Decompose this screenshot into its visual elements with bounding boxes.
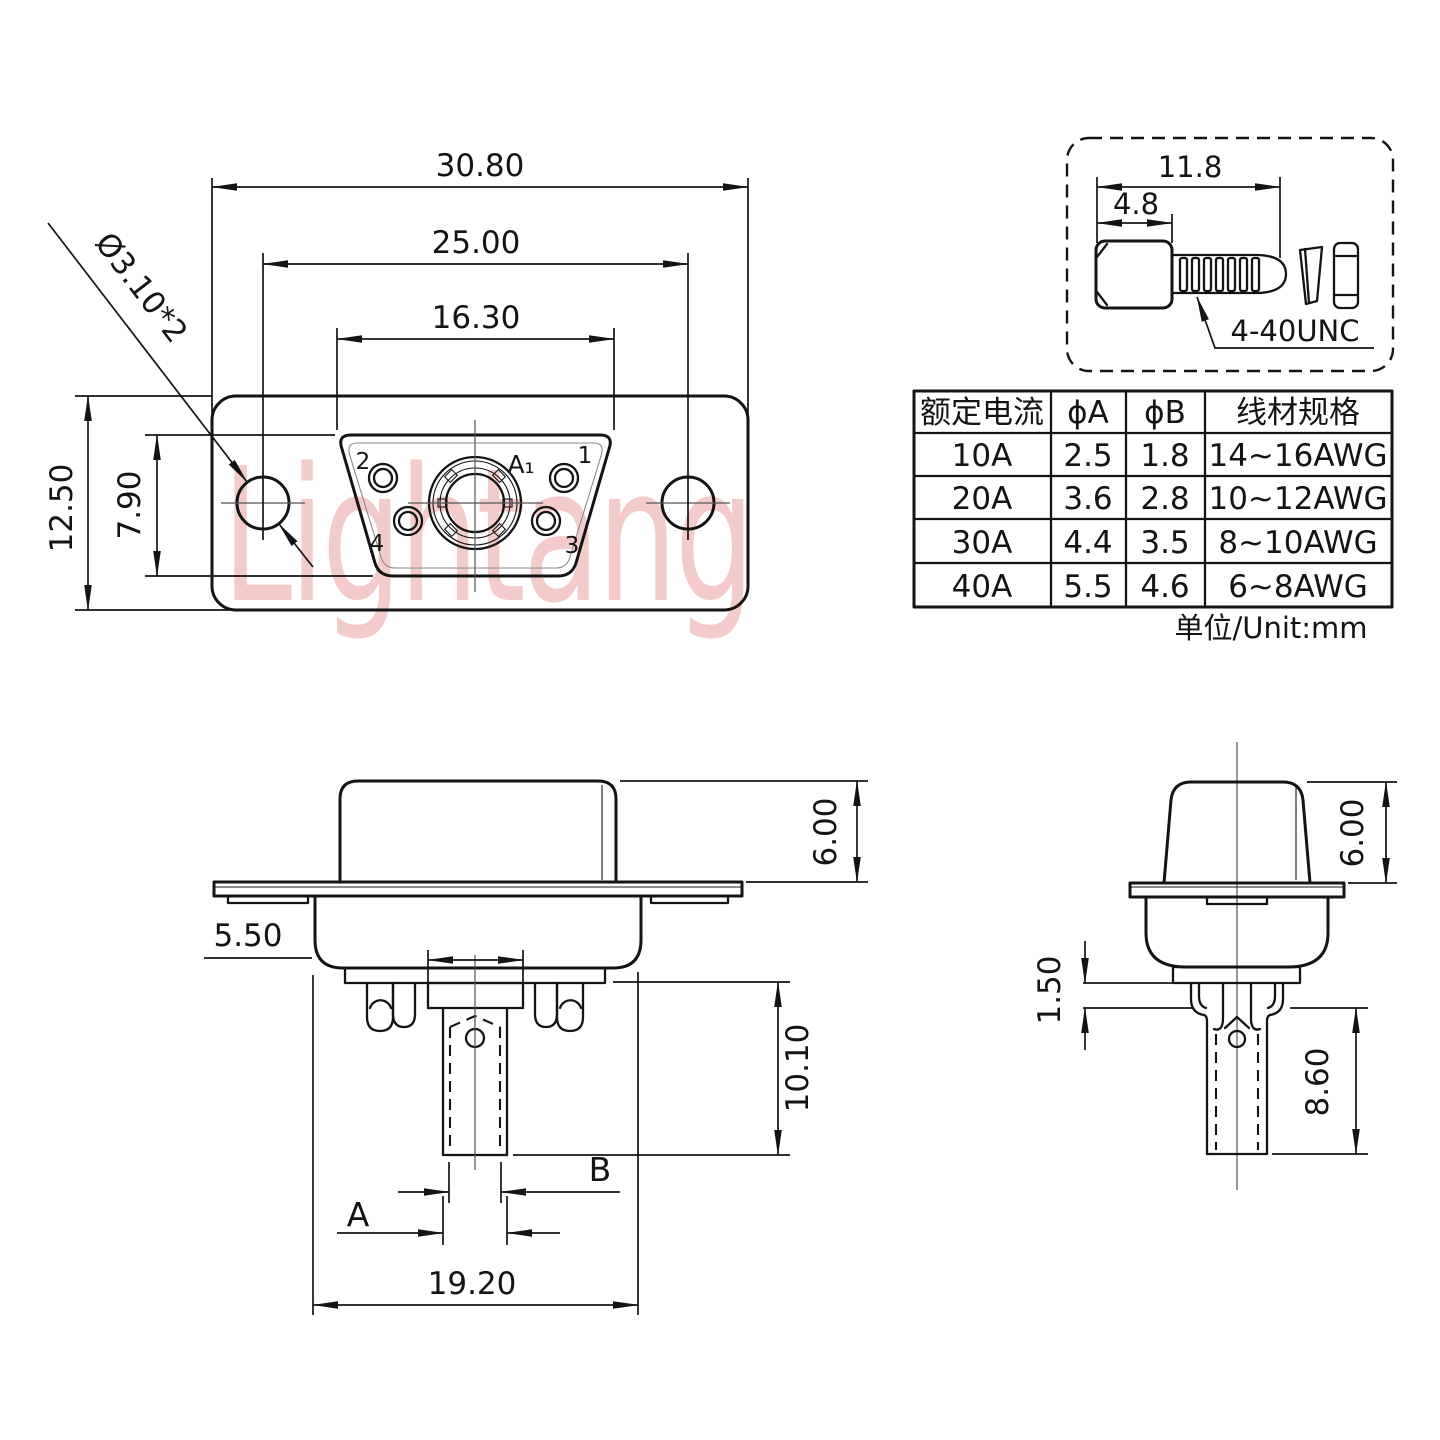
- side-body-outline: [315, 896, 641, 968]
- table-cell: 4.4: [1063, 525, 1112, 561]
- unit-note: 单位/Unit:mm: [1174, 611, 1367, 645]
- side-flange-tab-left: [228, 896, 308, 903]
- side-view: 6.00 5.50 10.10 B: [204, 781, 868, 1315]
- table-cell: 3.5: [1140, 525, 1189, 561]
- dim-text-screw-total: 11.8: [1158, 150, 1223, 184]
- table-cell: 2.8: [1140, 481, 1189, 517]
- pin-label-1: 1: [578, 443, 593, 469]
- table-header-dia-b: ϕB: [1144, 395, 1186, 431]
- dim-text-b: B: [589, 1150, 612, 1189]
- side-solder-barrel: [443, 955, 507, 1170]
- dim-text-overall-width: 30.80: [436, 148, 525, 184]
- screw-cylinder-part: [1334, 243, 1358, 308]
- drawing-canvas: Lightang: [0, 0, 1440, 1440]
- table-row-20a: 20A 3.6 2.8 10~12AWG: [952, 481, 1388, 517]
- dim-label-b: B: [398, 1150, 620, 1203]
- screw-wedge-part: [1300, 247, 1322, 304]
- table-cell: 8~10AWG: [1218, 525, 1377, 561]
- side-flange-tab-right: [651, 896, 728, 903]
- thread-spec-text: 4-40UNC: [1231, 314, 1360, 348]
- dim-text-body-width: 19.20: [428, 1266, 517, 1302]
- table-header-wire-spec: 线材规格: [1236, 395, 1360, 431]
- side-shell-outline: [340, 781, 616, 882]
- thread-spec-callout: 4-40UNC: [1197, 297, 1374, 348]
- spec-table: 额定电流 ϕA ϕB 线材规格 10A 2.5 1.8 14~16AWG 20A…: [914, 391, 1392, 645]
- technical-drawing-page: Lightang: [0, 0, 1440, 1440]
- table-cell: 30A: [952, 525, 1013, 561]
- dim-side-shell-height: 6.00: [620, 781, 868, 882]
- table-row-40a: 40A 5.5 4.6 6~8AWG: [952, 569, 1368, 605]
- pin-label-a1: A₁: [507, 450, 534, 479]
- dim-end-tail-length: 8.60: [1272, 1008, 1368, 1154]
- table-cell: 14~16AWG: [1208, 438, 1387, 474]
- table-cell: 4.6: [1140, 569, 1189, 605]
- dim-text-hole-spacing: 25.00: [432, 225, 521, 261]
- table-cell: 10A: [952, 438, 1013, 474]
- dim-text-mounting-holes: Ø3.10*2: [87, 226, 194, 350]
- table-header-dia-a: ϕA: [1067, 395, 1109, 431]
- dim-text-end-shell-height: 6.00: [1335, 798, 1371, 867]
- screw-detail: 11.8 4.8: [1067, 138, 1393, 371]
- dim-text-side-shell-height: 6.00: [808, 797, 844, 866]
- table-row-30a: 30A 4.4 3.5 8~10AWG: [952, 525, 1378, 561]
- dim-overall-width: 30.80: [212, 148, 748, 420]
- table-cell: 20A: [952, 481, 1013, 517]
- table-cell: 1.8: [1140, 438, 1189, 474]
- dim-text-end-tail: 8.60: [1300, 1047, 1336, 1116]
- dim-text-side-tail: 10.10: [780, 1024, 816, 1113]
- table-cell: 40A: [952, 569, 1013, 605]
- dim-text-a: A: [347, 1195, 370, 1234]
- table-row-10a: 10A 2.5 1.8 14~16AWG: [952, 438, 1388, 474]
- screw-head: [1096, 241, 1172, 308]
- table-header-row: 额定电流 ϕA ϕB 线材规格: [920, 395, 1360, 431]
- dim-text-step-height: 1.50: [1032, 955, 1068, 1024]
- dim-insert-width: 16.30: [337, 300, 614, 430]
- thumbscrew-drawing: [1096, 241, 1358, 308]
- dim-text-overall-height: 12.50: [44, 464, 80, 553]
- dim-text-cup-width: 5.50: [213, 918, 282, 954]
- table-cell: 3.6: [1063, 481, 1112, 517]
- dim-side-tail-length: 10.10: [513, 982, 816, 1155]
- dim-end-shell-height: 6.00: [1307, 782, 1397, 883]
- table-cell: 6~8AWG: [1228, 569, 1368, 605]
- dim-step-height: 1.50: [1032, 941, 1192, 1050]
- dim-text-insert-width: 16.30: [432, 300, 521, 336]
- table-header-rated-current: 额定电流: [920, 395, 1044, 431]
- dim-screw-head-length: 4.8: [1097, 187, 1172, 243]
- end-view: 6.00 1.50 8.60: [1032, 742, 1397, 1190]
- table-cell: 10~12AWG: [1208, 481, 1387, 517]
- dim-text-insert-height: 7.90: [112, 470, 148, 539]
- side-flange: [214, 882, 742, 896]
- pin-label-3: 3: [565, 533, 580, 559]
- pin-label-4: 4: [370, 531, 385, 557]
- pin-label-2: 2: [356, 449, 371, 475]
- table-cell: 5.5: [1063, 569, 1112, 605]
- screw-threads: [1180, 258, 1259, 291]
- dim-text-screw-head: 4.8: [1113, 187, 1159, 221]
- table-cell: 2.5: [1063, 438, 1112, 474]
